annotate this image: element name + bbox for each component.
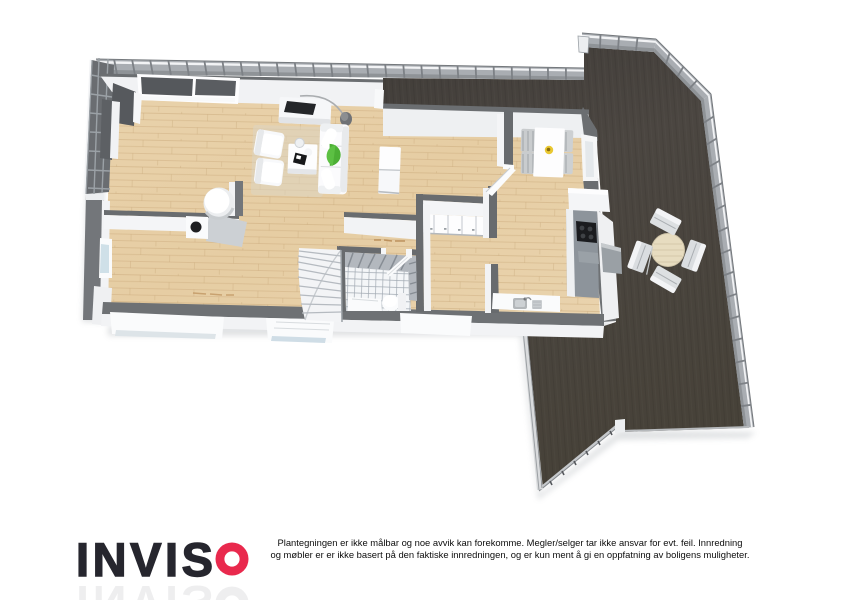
svg-text:Plantegningen er ikke målbar o: Plantegningen er ikke målbar og noe avvi… xyxy=(278,538,743,548)
svg-text:og møbler er er ikke basert på: og møbler er er ikke basert på den fakti… xyxy=(271,550,750,560)
svg-text:INVIS: INVIS xyxy=(76,576,216,600)
